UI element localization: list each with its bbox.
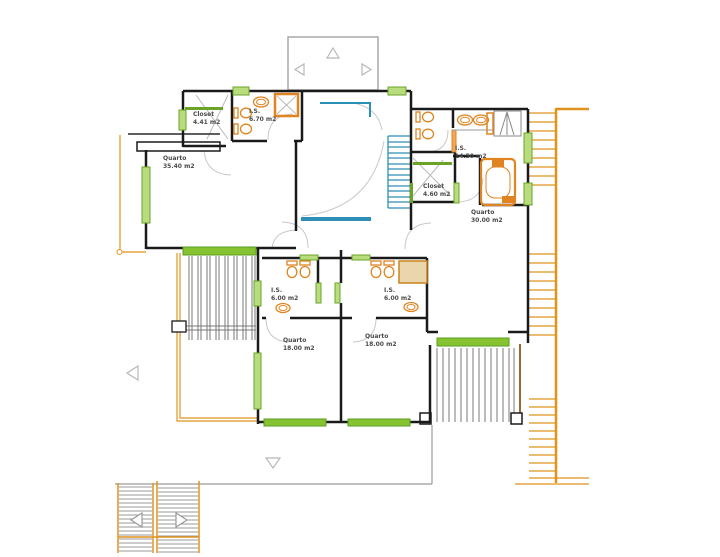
terrace-edge [115,425,432,484]
wall-lines [146,91,528,424]
room-label-quarto-left-area: 35.40 m2 [163,163,195,170]
room-label-quarto-left-name: Quarto [163,155,186,162]
down-arrow-icon [266,458,280,468]
bidet-icon [300,261,310,278]
left-pergola [172,256,256,340]
toilet-icon [287,261,297,278]
room-label-closet-right-area: 4.60 m2 [423,191,450,198]
exterior-stairs [118,481,199,553]
deck-post-icon [117,250,122,255]
window [233,87,249,95]
bottom-right-pergola [420,348,522,424]
pergola-slats [437,348,514,422]
room-label-is-upper-left-area: 6.70 m2 [249,116,276,123]
balcony [288,37,378,90]
window [316,283,321,303]
balcony-outline [288,37,378,90]
room-label-quarto-bottom-left-name: Quarto [283,337,306,344]
window [524,133,532,163]
sink-icon [458,115,473,125]
toilet-icon [416,112,434,122]
room-label-is-mid-right-area: 6.00 m2 [384,295,411,302]
room-label-is-mid-left-area: 6.00 m2 [271,295,298,302]
room-label-is-right-area: 14.50 m2 [455,153,487,160]
shower-icon [487,111,521,136]
room-label-is-mid-left-name: I.S. [271,287,282,294]
floor-plan-svg: Closet 4.41 m2 I.S. 6.70 m2 Quarto 35.40… [0,0,720,557]
floor-plan-canvas: Closet 4.41 m2 I.S. 6.70 m2 Quarto 35.40… [0,0,720,557]
window-band [348,419,410,426]
door-arc [405,223,431,249]
room-label-quarto-bottom-right-area: 18.00 m2 [365,341,397,348]
window [388,87,406,95]
closet-shelf [410,183,413,203]
room-label-quarto-right-name: Quarto [471,209,494,216]
left-arrow-icon [127,366,138,380]
window [179,110,186,130]
room-label-quarto-right-area: 30.00 m2 [471,217,503,224]
transom-window [300,255,318,260]
room-label-is-upper-left-name: I.S. [249,108,260,115]
trellis-rail [556,108,589,483]
window-band [437,338,509,346]
room-label-is-right-name: I.S. [455,145,466,152]
closet-shelf [413,162,452,165]
room-label-quarto-bottom-left-area: 18.00 m2 [283,345,315,352]
trellis-rungs-middle [529,254,556,335]
trellis-rungs-top [529,113,556,185]
stair-treads [388,136,410,208]
stair-void-top [320,103,370,117]
pergola-bracket [172,321,186,332]
room-label-closet-right-name: Closet [423,183,444,190]
room-label-quarto-bottom-right-name: Quarto [365,333,388,340]
sink-icon [276,304,290,313]
window [524,183,532,205]
window [254,281,261,306]
door-arc [428,130,448,152]
stair-sweep-curve [302,104,384,216]
window [335,283,340,303]
door-panel [454,183,459,203]
bathtub-icon [481,159,515,205]
bidet-icon [234,124,252,134]
sink-icon [404,303,418,312]
transom-window [352,255,370,260]
closet-shelf [185,107,223,110]
trellis-rungs-bottom [529,399,556,471]
bidet-icon [416,129,434,139]
window [142,167,150,223]
sink-icon [254,97,269,107]
stair-up-right-arrow-icon [176,513,187,527]
room-label-closet-upper-left-area: 4.41 m2 [193,119,220,126]
room-label-closet-upper-left-name: Closet [193,111,214,118]
window-band [264,419,326,426]
room-label-is-mid-right-name: I.S. [384,287,395,294]
pergola-post [511,413,522,424]
interior-staircase [301,103,410,219]
fixtures [234,94,521,313]
right-trellis [515,108,589,484]
ground-lines [115,425,432,484]
toilet-icon [371,261,381,278]
door-arc [272,230,296,248]
bidet-icon [384,261,394,278]
trellis-base [515,478,589,484]
pergola-slats [189,256,255,340]
shower-icon [399,261,427,283]
window [254,353,261,409]
walls [128,91,528,424]
shower-glass-lines [277,96,296,114]
window-band [183,247,256,255]
